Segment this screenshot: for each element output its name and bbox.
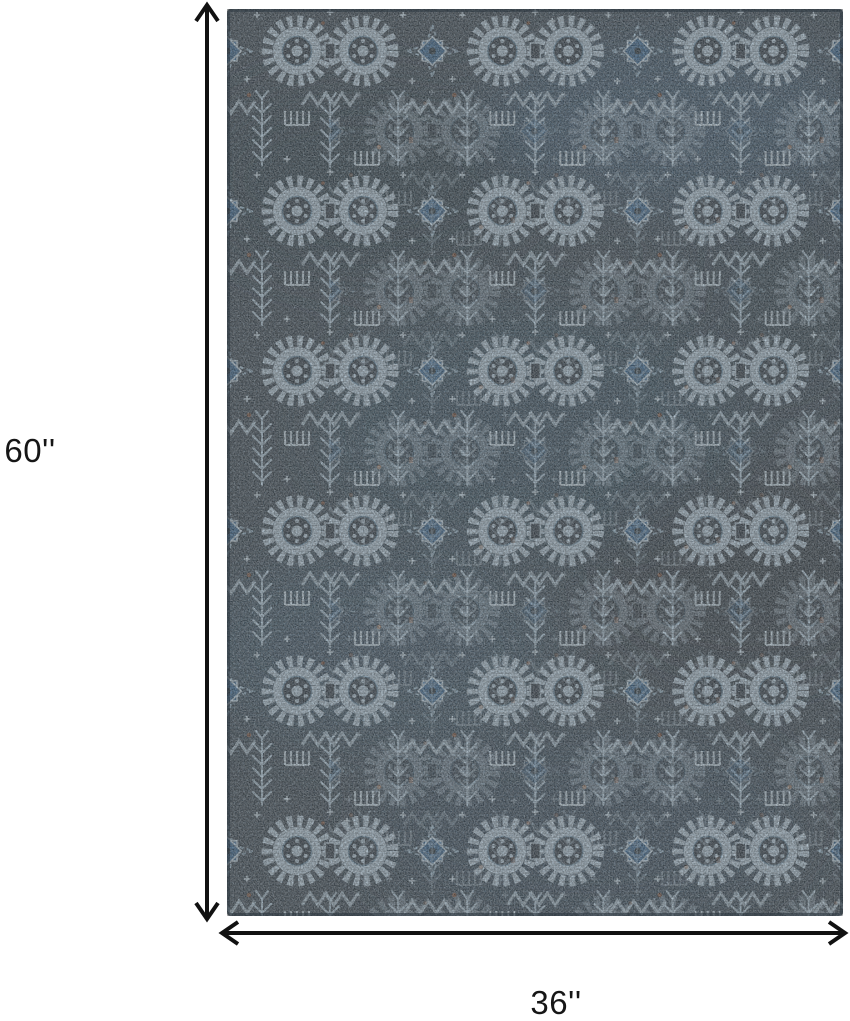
dimension-diagram: 60'' 36'' <box>0 0 850 1020</box>
height-label: 60'' <box>0 434 60 467</box>
width-label: 36'' <box>524 986 588 1019</box>
width-dimension-arrow <box>222 922 845 944</box>
rug-image <box>227 9 843 916</box>
height-dimension-arrow <box>196 5 218 919</box>
